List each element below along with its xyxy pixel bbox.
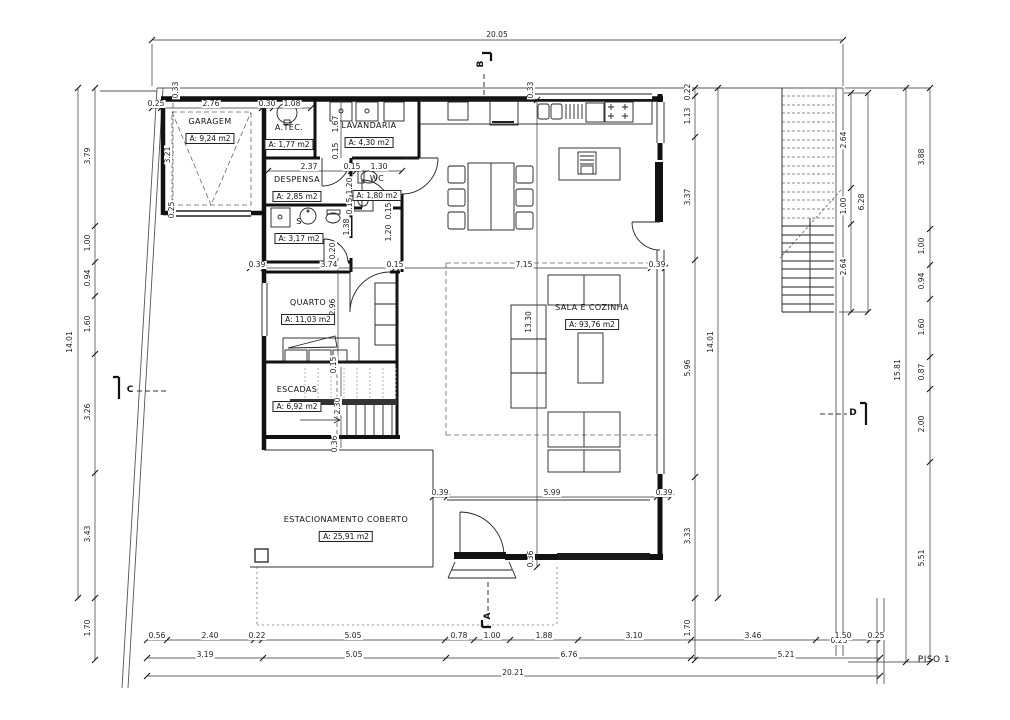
chair-icon (516, 189, 533, 206)
chair-icon (448, 166, 465, 183)
chair-icon (448, 189, 465, 206)
dimension-label: 1.20 (385, 224, 393, 243)
room-label: SALA E COZINHAA: 93,76 m2 (555, 303, 629, 331)
section-marker: C (127, 385, 134, 395)
dimension-label: 0.39 (648, 261, 667, 269)
room-name: ESTACIONAMENTO COBERTO (284, 515, 408, 524)
dimension-label: 2.30 (334, 397, 342, 416)
dimension-label: 3.19 (196, 651, 215, 659)
dimension-label: 1.00 (483, 632, 502, 640)
kitchen-counter (420, 100, 652, 125)
dimension-label: 0.94 (918, 272, 926, 291)
dimension-label: 7.15 (515, 261, 534, 269)
dimension-label: 1.08 (283, 100, 302, 108)
dimension-label: 5.05 (345, 651, 364, 659)
floor-plan-sheet: 20.050.252.760.301.080.333.210.251.670.1… (0, 0, 1010, 720)
room-name: ESCADAS (272, 385, 321, 394)
dimension-label: 0.15 (332, 142, 340, 161)
south-window-sill (557, 553, 650, 560)
sink-icon (551, 104, 562, 119)
sink-icon (538, 104, 549, 119)
room-name: WC (352, 174, 401, 183)
room-area: A: 11,03 m2 (281, 314, 335, 325)
dining-table (448, 163, 533, 230)
dimension-label: 1.67 (332, 115, 340, 134)
dimension-label: 14.01 (66, 330, 74, 353)
room-label: LAVANDARIAA: 4,30 m2 (342, 121, 397, 149)
dimension-label: 1.30 (370, 163, 389, 171)
terrace-door (632, 222, 660, 250)
dimension-label: 2.64 (840, 258, 848, 277)
dimension-label: 2.40 (201, 632, 220, 640)
dimension-label: 2.37 (300, 163, 319, 171)
dimension-label: 3.43 (84, 525, 92, 544)
dimension-label: 0.25 (867, 632, 886, 640)
dimension-label: 1.00 (84, 234, 92, 253)
room-area: A: 93,76 m2 (565, 319, 619, 330)
carport-edges (250, 450, 650, 567)
chair-icon (448, 212, 465, 229)
worktop-icon (586, 103, 604, 122)
dimension-label: 15.81 (894, 358, 902, 381)
room-name: S (274, 217, 323, 226)
dimension-label: 6.76 (560, 651, 579, 659)
dimension-label: 0.30 (258, 100, 277, 108)
room-area: A: 4,30 m2 (344, 137, 393, 148)
section-marker: A (483, 613, 493, 620)
dimension-label: 0.25 (168, 201, 176, 220)
garage-door (172, 211, 251, 216)
entrance-steps (448, 562, 516, 578)
stairs-exterior (780, 88, 841, 312)
dimension-label: 3.10 (625, 632, 644, 640)
dimension-label: 20.21 (501, 669, 524, 677)
chair-icon (516, 212, 533, 229)
dimension-label: 0.22 (684, 83, 692, 102)
dimension-label: 1.70 (684, 619, 692, 638)
dimension-label: 0.33 (172, 81, 180, 100)
dimension-label: 5.05 (344, 632, 363, 640)
dimension-label: 1.38 (343, 218, 351, 237)
dimension-label: 1.50 (834, 632, 853, 640)
stove-icon (605, 102, 633, 122)
dimension-label: 14.01 (707, 330, 715, 353)
kitchen-hall-door (402, 158, 438, 194)
room-label: GARAGEMA: 9,24 m2 (185, 117, 234, 145)
room-name: LAVANDARIA (342, 121, 397, 130)
room-name: DESPENSA (272, 175, 321, 184)
quarto-door (350, 272, 390, 312)
laundry-unit-icon (384, 102, 404, 121)
room-name: GARAGEM (185, 117, 234, 126)
sliding-door-panel (655, 162, 663, 222)
carport-roof-dotted (257, 567, 557, 625)
room-name: A.TÉC. (264, 123, 313, 132)
dimension-label: 0.56 (148, 632, 167, 640)
dimension-label: 0.15 (343, 163, 362, 171)
section-marker: B (476, 61, 486, 68)
dimension-label: 3.79 (84, 147, 92, 166)
dimension-label: 0.22 (248, 632, 267, 640)
dimension-label: 1.70 (84, 619, 92, 638)
floor-plan-drawing (0, 0, 1010, 720)
front-door-threshold (454, 552, 506, 559)
dimension-label: 1.60 (918, 318, 926, 337)
dimension-label: 0.20 (329, 242, 337, 261)
dimension-label: 20.05 (485, 31, 508, 39)
dryer-icon (356, 102, 378, 121)
toilet-icon (326, 213, 340, 223)
room-label: A.TÉC.A: 1,77 m2 (264, 123, 313, 151)
dimension-label: 3.26 (84, 403, 92, 422)
dimension-label: 0.39 (248, 261, 267, 269)
site-boundary (100, 88, 884, 688)
dimension-label: 5.21 (777, 651, 796, 659)
dimension-label: 0.33 (527, 81, 535, 100)
carport-column (255, 549, 268, 562)
room-label: WCA: 1,80 m2 (352, 174, 401, 202)
dimension-label: 3.37 (684, 188, 692, 207)
room-name: QUARTO (281, 298, 335, 307)
wardrobe-icon (375, 283, 397, 345)
room-label: ESTACIONAMENTO COBERTOA: 25,91 m2 (284, 515, 408, 543)
dimension-label: 0.39 (431, 489, 450, 497)
front-door-arc (460, 512, 504, 556)
drainer-icon (566, 104, 582, 119)
dimension-label: 0.94 (84, 269, 92, 288)
dimension-label: 0.15 (385, 202, 393, 221)
room-area: A: 3,17 m2 (274, 233, 323, 244)
appliance-icon (448, 102, 468, 120)
dimension-label: 2.64 (840, 131, 848, 150)
dimension-label: 1.00 (918, 237, 926, 256)
dimension-label: 0.36 (331, 435, 339, 454)
dimension-label: 2.76 (202, 100, 221, 108)
room-area: A: 2,85 m2 (272, 191, 321, 202)
dimension-label: 5.51 (918, 549, 926, 568)
dimension-label: 6.28 (858, 193, 866, 212)
dimension-label: 0.39 (655, 489, 674, 497)
dimension-label: 3.33 (684, 527, 692, 546)
room-area: A: 1,80 m2 (352, 190, 401, 201)
dimension-label: 5.96 (684, 359, 692, 378)
dimension-label: 0.36 (527, 550, 535, 569)
room-area: A: 6,92 m2 (272, 401, 321, 412)
room-name: SALA E COZINHA (555, 303, 629, 312)
dimension-label: 1.60 (84, 315, 92, 334)
dimension-label: 5.99 (543, 489, 562, 497)
dimension-label: 3.21 (164, 146, 172, 165)
section-cut-lines (137, 74, 847, 622)
room-area: A: 9,24 m2 (185, 133, 234, 144)
room-label: ESCADASA: 6,92 m2 (272, 385, 321, 413)
dimension-label: 1.88 (535, 632, 554, 640)
section-marker: D (849, 408, 856, 418)
dimension-label: 0.15 (386, 261, 405, 269)
room-area: A: 25,91 m2 (319, 531, 373, 542)
dimension-label: 2.00 (918, 415, 926, 434)
dimension-label: 1.00 (840, 197, 848, 216)
doors (172, 158, 660, 559)
dimension-label: 1.13 (684, 107, 692, 126)
dimension-label: 0.25 (147, 100, 166, 108)
sheet-title: PISO 1 (918, 655, 950, 665)
room-label: DESPENSAA: 2,85 m2 (272, 175, 321, 203)
dimension-label: 0.87 (918, 363, 926, 382)
dimension-label: 13.30 (525, 310, 533, 333)
dimension-label: 3.88 (918, 148, 926, 167)
dimension-label: 3.46 (744, 632, 763, 640)
dimension-label: 0.15 (330, 356, 338, 375)
dimension-label: 0.78 (450, 632, 469, 640)
chair-icon (516, 166, 533, 183)
room-label: SA: 3,17 m2 (274, 217, 323, 245)
coffee-table-icon (578, 333, 603, 383)
dimension-label: 3.74 (320, 261, 339, 269)
kitchen-island (559, 148, 620, 180)
overhang-dashed-lines (172, 103, 657, 435)
room-area: A: 1,77 m2 (264, 139, 313, 150)
room-label: QUARTOA: 11,03 m2 (281, 298, 335, 326)
